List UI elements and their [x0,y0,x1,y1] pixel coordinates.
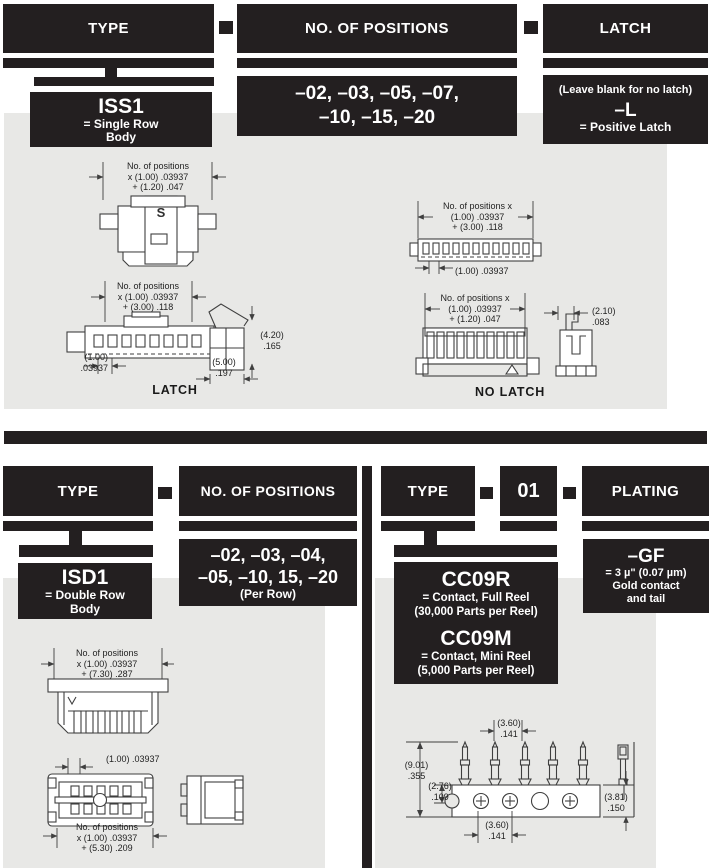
datasheet-page: TYPE NO. OF POSITIONS LATCH ISS1 = Singl… [0,0,711,868]
bottom-header-positions: NO. OF POSITIONS [179,466,357,516]
latch-width-dim: (5.00) .197 [206,357,242,378]
bottom-header-01: 01 [500,466,557,516]
cc09m-code: CC09M [440,627,511,650]
no-latch-dim: No. of positions x (1.00) .03937 + (1.20… [418,293,532,325]
flow-connector-square [563,487,576,499]
top-positions-line1: –02, –03, –05, –07, [295,82,459,106]
flow-bar [543,58,708,68]
bottom-header-type-right-label: TYPE [408,483,449,500]
flow-connector-square [219,21,233,34]
contact-height-dim: (9.01) .355 [400,760,433,781]
top-header-positions-label: NO. OF POSITIONS [305,20,449,37]
gf-line1: = 3 µ" (0.07 µm) [605,567,686,580]
flow-bar [3,521,153,531]
bottom-header-01-label: 01 [517,480,539,503]
flow-connector-square [158,487,172,499]
header-strip-pitch: (1.00) .03937 [455,266,519,277]
top-header-type-label: TYPE [88,20,129,37]
bottom-header-plating: PLATING [582,466,709,516]
flow-bar [179,521,357,531]
iss1-code: ISS1 [98,95,144,118]
bottom-positions-line3: (Per Row) [240,588,296,602]
cc09m-desc2: (5,000 Parts per Reel) [418,664,535,678]
plating-value-box: –GF = 3 µ" (0.07 µm) Gold contact and ta… [583,539,709,613]
flow-bar [237,58,517,68]
isd1-pitch-dim: (1.00) .03937 [106,754,176,765]
isd1-desc2: Body [70,603,100,617]
no-latch-width-dim: (2.10) .083 [592,306,628,327]
flow-bar [394,545,557,557]
contact-value-box: CC09R = Contact, Full Reel (30,000 Parts… [394,562,558,684]
isd1-desc1: = Double Row [45,589,125,603]
bottom-header-positions-label: NO. OF POSITIONS [201,483,336,499]
bottom-positions-line1: –02, –03, –04, [210,544,325,566]
isd1-value-box: ISD1 = Double Row Body [18,563,152,619]
contact-bottom-width-dim: (3.60) .141 [481,820,513,841]
iss1-desc1: = Single Row [83,118,158,132]
isd1-front-dim: No. of positions x (1.00) .03937 + (5.30… [55,822,159,854]
cc09r-desc1: = Contact, Full Reel [422,591,529,605]
bottom-positions-value-box: –02, –03, –04, –05, –10, 15, –20 (Per Ro… [179,539,357,606]
isd1-top-dim: No. of positions x (1.00) .03937 + (7.30… [55,648,159,680]
vertical-divider-bar [362,466,372,868]
gf-line2: Gold contact [612,580,679,593]
top-header-latch-label: LATCH [600,20,652,37]
bottom-positions-line2: –05, –10, 15, –20 [198,566,338,588]
gf-code: –GF [628,546,665,567]
iss1-s-marking: S [154,205,168,220]
section-divider-bar [4,431,707,444]
latch-pitch-dim: (1.00) .03937 [62,352,108,373]
bottom-header-type-left: TYPE [3,466,153,516]
gf-line3: and tail [627,593,666,606]
iss1-desc2: Body [106,131,136,145]
cc09r-desc2: (30,000 Parts per Reel) [414,605,537,619]
flow-bar [3,58,214,68]
top-header-type: TYPE [3,4,214,53]
iss1-mated-dim: No. of positions x (1.00) .03937 + (1.20… [106,161,210,193]
flow-connector-square [524,21,538,34]
cc09r-code: CC09R [442,568,511,591]
latch-height-dim: (4.20) .165 [252,330,292,351]
contact-strip-height-dim: (2.76) .109 [424,781,456,802]
latch-desc: = Positive Latch [580,121,672,135]
iss1-value-box: ISS1 = Single Row Body [30,92,212,147]
top-positions-line2: –10, –15, –20 [319,106,435,130]
top-header-latch: LATCH [543,4,708,53]
contact-pins [459,742,589,785]
top-positions-value-box: –02, –03, –05, –07, –10, –15, –20 [237,76,517,136]
bottom-header-type-right: TYPE [381,466,475,516]
contact-right-dim: (3.81) .150 [599,792,633,813]
flow-bar [582,521,709,531]
flow-bar [500,521,557,531]
flow-connector-square [480,487,493,499]
no-latch-caption: NO LATCH [465,385,555,399]
flow-bar [34,77,214,86]
bottom-header-plating-label: PLATING [612,483,680,500]
flow-bar [381,521,475,531]
latch-caption: LATCH [140,383,210,397]
latch-value-box: (Leave blank for no latch) –L = Positive… [543,75,708,144]
latch-note: (Leave blank for no latch) [559,84,692,97]
header-strip-dim: No. of positions x (1.00) .03937 + (3.00… [420,201,535,233]
cc09m-desc1: = Contact, Mini Reel [421,650,531,664]
isd1-code: ISD1 [62,566,109,589]
flow-bar [19,545,153,557]
latch-code: –L [614,100,636,121]
top-header-positions: NO. OF POSITIONS [237,4,517,53]
bottom-header-type-left-label: TYPE [58,483,99,500]
latch-front-dim: No. of positions x (1.00) .03937 + (3.00… [100,281,196,313]
contact-top-width-dim: (3.60) .141 [493,718,525,739]
